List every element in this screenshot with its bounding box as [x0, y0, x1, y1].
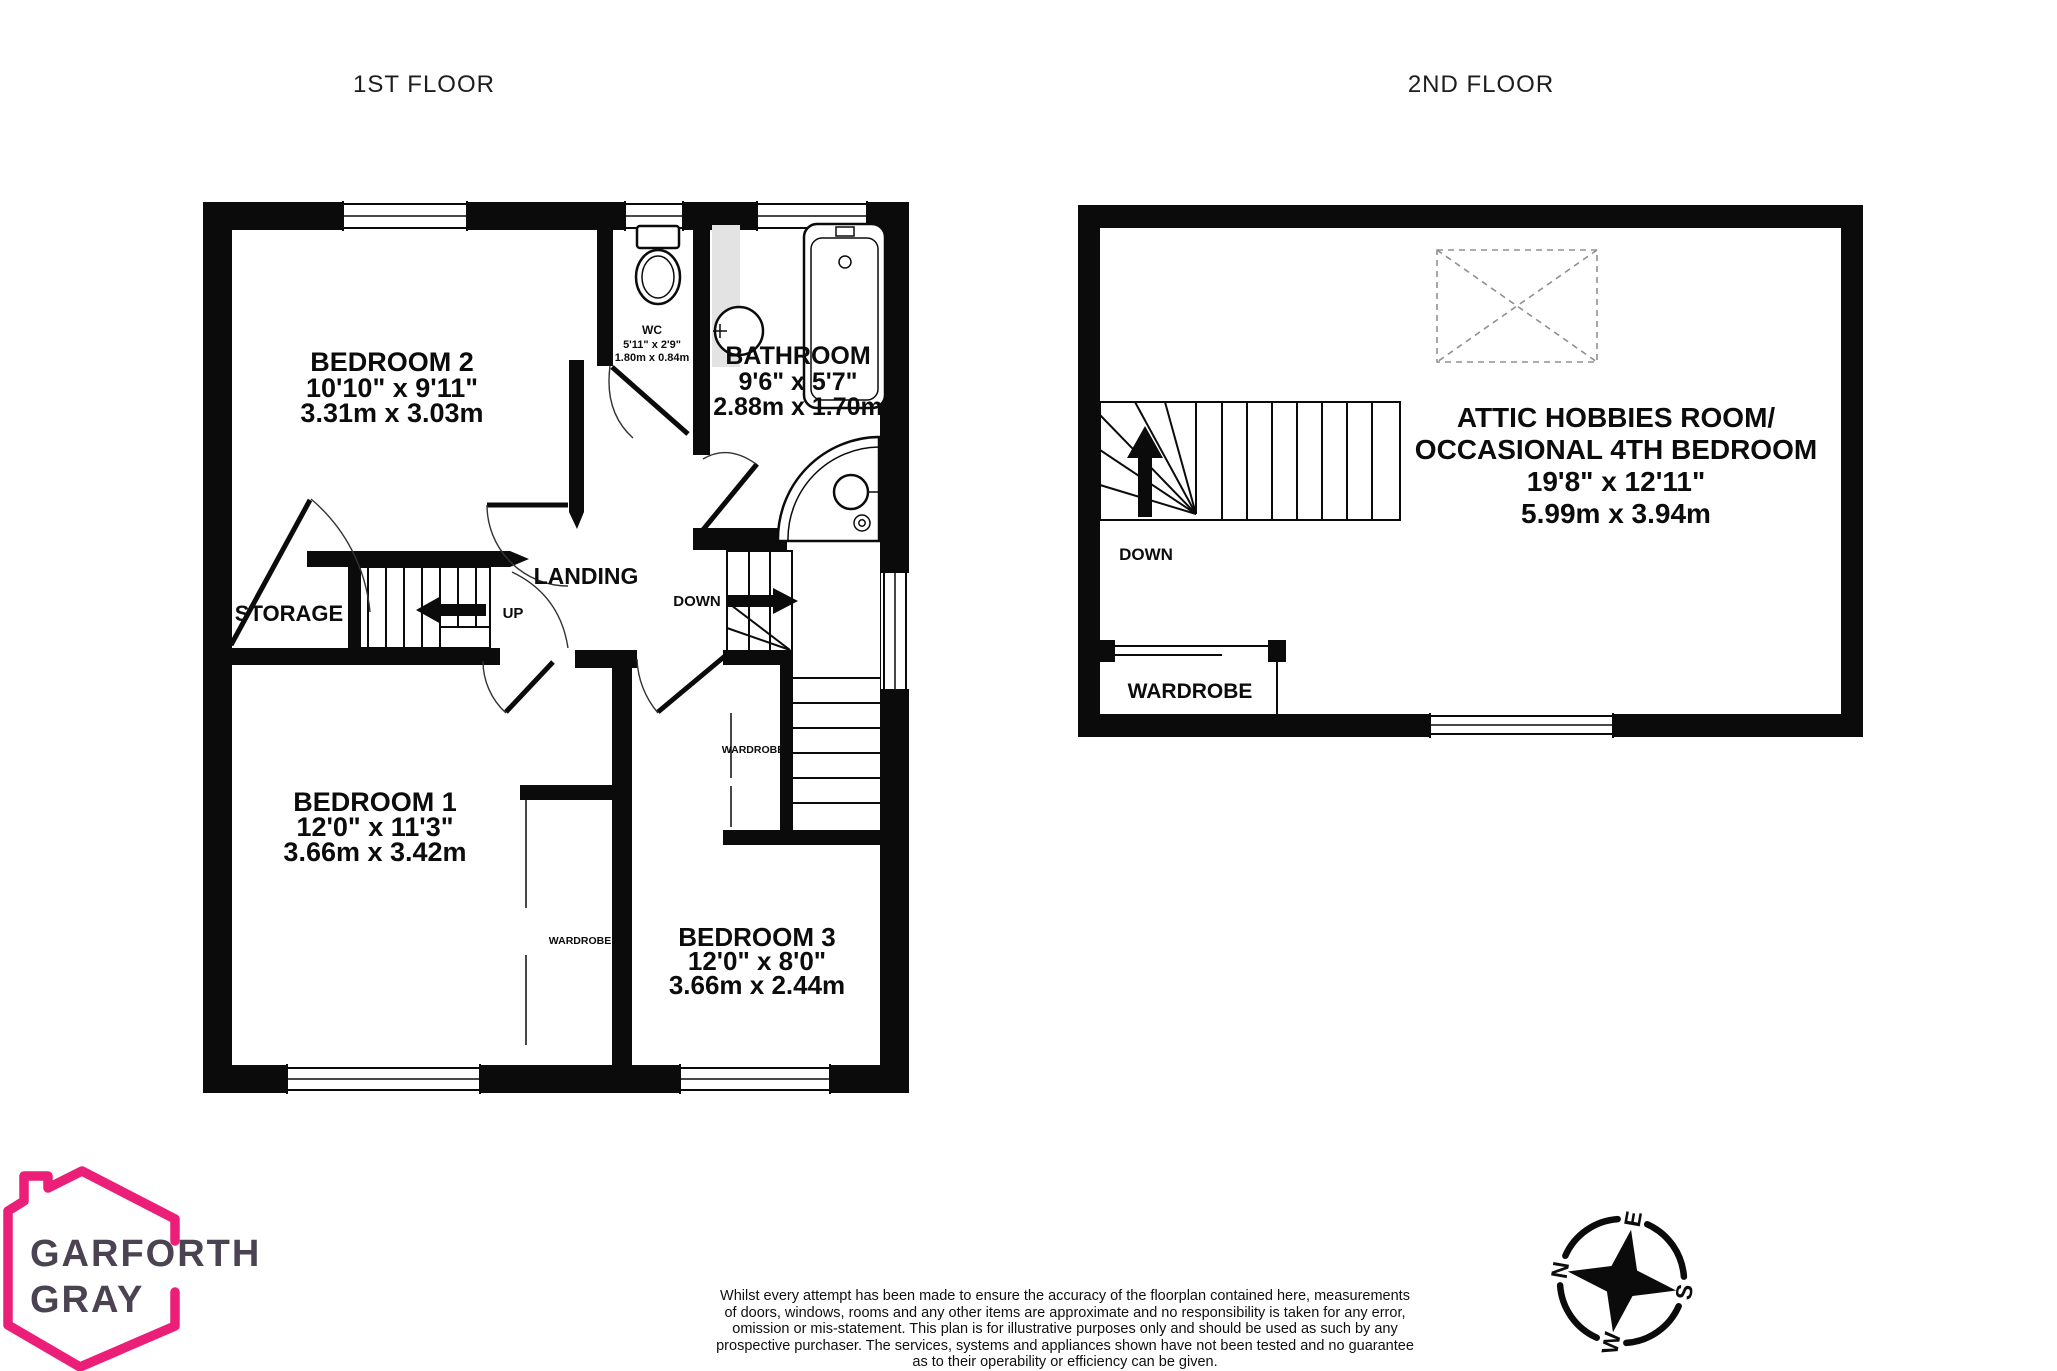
disclaimer-line: prospective purchaser. The services, sys…	[550, 1338, 1580, 1355]
wc-metric: 1.80m x 0.84m	[615, 352, 690, 364]
attic-metric: 5.99m x 3.94m	[1521, 498, 1711, 529]
window-bedroom1	[287, 1064, 480, 1094]
garforth-gray-logo: GARFORTH GRAY	[8, 1171, 261, 1367]
wardrobe-bedroom3-label: WARDROBE	[722, 744, 784, 756]
disclaimer-line: omission or mis-statement. This plan is …	[550, 1321, 1580, 1338]
attic-label-line2: OCCASIONAL 4TH BEDROOM	[1415, 434, 1817, 465]
attic-imperial: 19'8" x 12'11"	[1527, 466, 1705, 497]
wardrobe-bedroom1-label: WARDROBE	[549, 935, 611, 947]
down-label-2nd: DOWN	[1119, 545, 1173, 564]
bedroom1-metric: 3.66m x 3.42m	[283, 837, 466, 867]
floorplan-first-floor: BEDROOM 2 10'10" x 9'11" 3.31m x 3.03m W…	[203, 201, 909, 1094]
bedroom3-metric: 3.66m x 2.44m	[669, 970, 845, 1000]
door-bedroom3	[637, 656, 725, 713]
disclaimer-text: Whilst every attempt has been made to en…	[550, 1288, 1580, 1371]
window-bedroom2	[343, 201, 467, 231]
compass-s: S	[1670, 1282, 1698, 1302]
compass-n: N	[1546, 1260, 1574, 1281]
window-stairwell	[881, 572, 909, 690]
floorplan-second-floor: ATTIC HOBBIES ROOM/ OCCASIONAL 4TH BEDRO…	[1078, 205, 1863, 738]
disclaimer-line: Whilst every attempt has been made to en…	[550, 1288, 1580, 1305]
wardrobe-2nd-label: WARDROBE	[1128, 680, 1253, 703]
skylight-icon	[1437, 250, 1597, 362]
storage-label: STORAGE	[235, 601, 343, 626]
floorplan-page: 1ST FLOOR 2ND FLOOR	[0, 0, 2057, 1371]
wc-label: WC	[642, 323, 662, 337]
landing-label: LANDING	[534, 563, 639, 589]
disclaimer-line: as to their operability or efficiency ca…	[550, 1354, 1580, 1371]
compass-w: W	[1596, 1330, 1625, 1356]
bathroom-imperial: 9'6" x 5'7"	[738, 368, 857, 396]
floorplan-drawing: BEDROOM 2 10'10" x 9'11" 3.31m x 3.03m W…	[0, 0, 2057, 1371]
bathroom-metric: 2.88m x 1.70m	[713, 393, 883, 421]
door-bathroom	[702, 453, 757, 531]
door-bedroom1	[483, 661, 553, 713]
compass-e: E	[1619, 1209, 1647, 1229]
logo-text-line2: GRAY	[30, 1279, 144, 1321]
attic-label-line1: ATTIC HOBBIES ROOM/	[1457, 402, 1776, 433]
disclaimer-line: of doors, windows, rooms and any other i…	[550, 1305, 1580, 1322]
up-label: UP	[503, 605, 524, 622]
wc-imperial: 5'11" x 2'9"	[623, 339, 681, 351]
stairs-down	[727, 551, 880, 830]
logo-text-line1: GARFORTH	[30, 1233, 261, 1275]
toilet-icon	[636, 226, 680, 304]
bathroom-label: BATHROOM	[725, 342, 870, 370]
window-attic	[1430, 713, 1613, 738]
bedroom2-metric: 3.31m x 3.03m	[300, 398, 483, 428]
door-wc	[609, 366, 688, 438]
stairs-up	[360, 567, 490, 648]
window-bedroom3	[680, 1064, 830, 1094]
corner-shower-icon	[778, 437, 879, 541]
stairs-down-2nd	[1100, 402, 1400, 520]
down-label-1st: DOWN	[673, 593, 721, 610]
